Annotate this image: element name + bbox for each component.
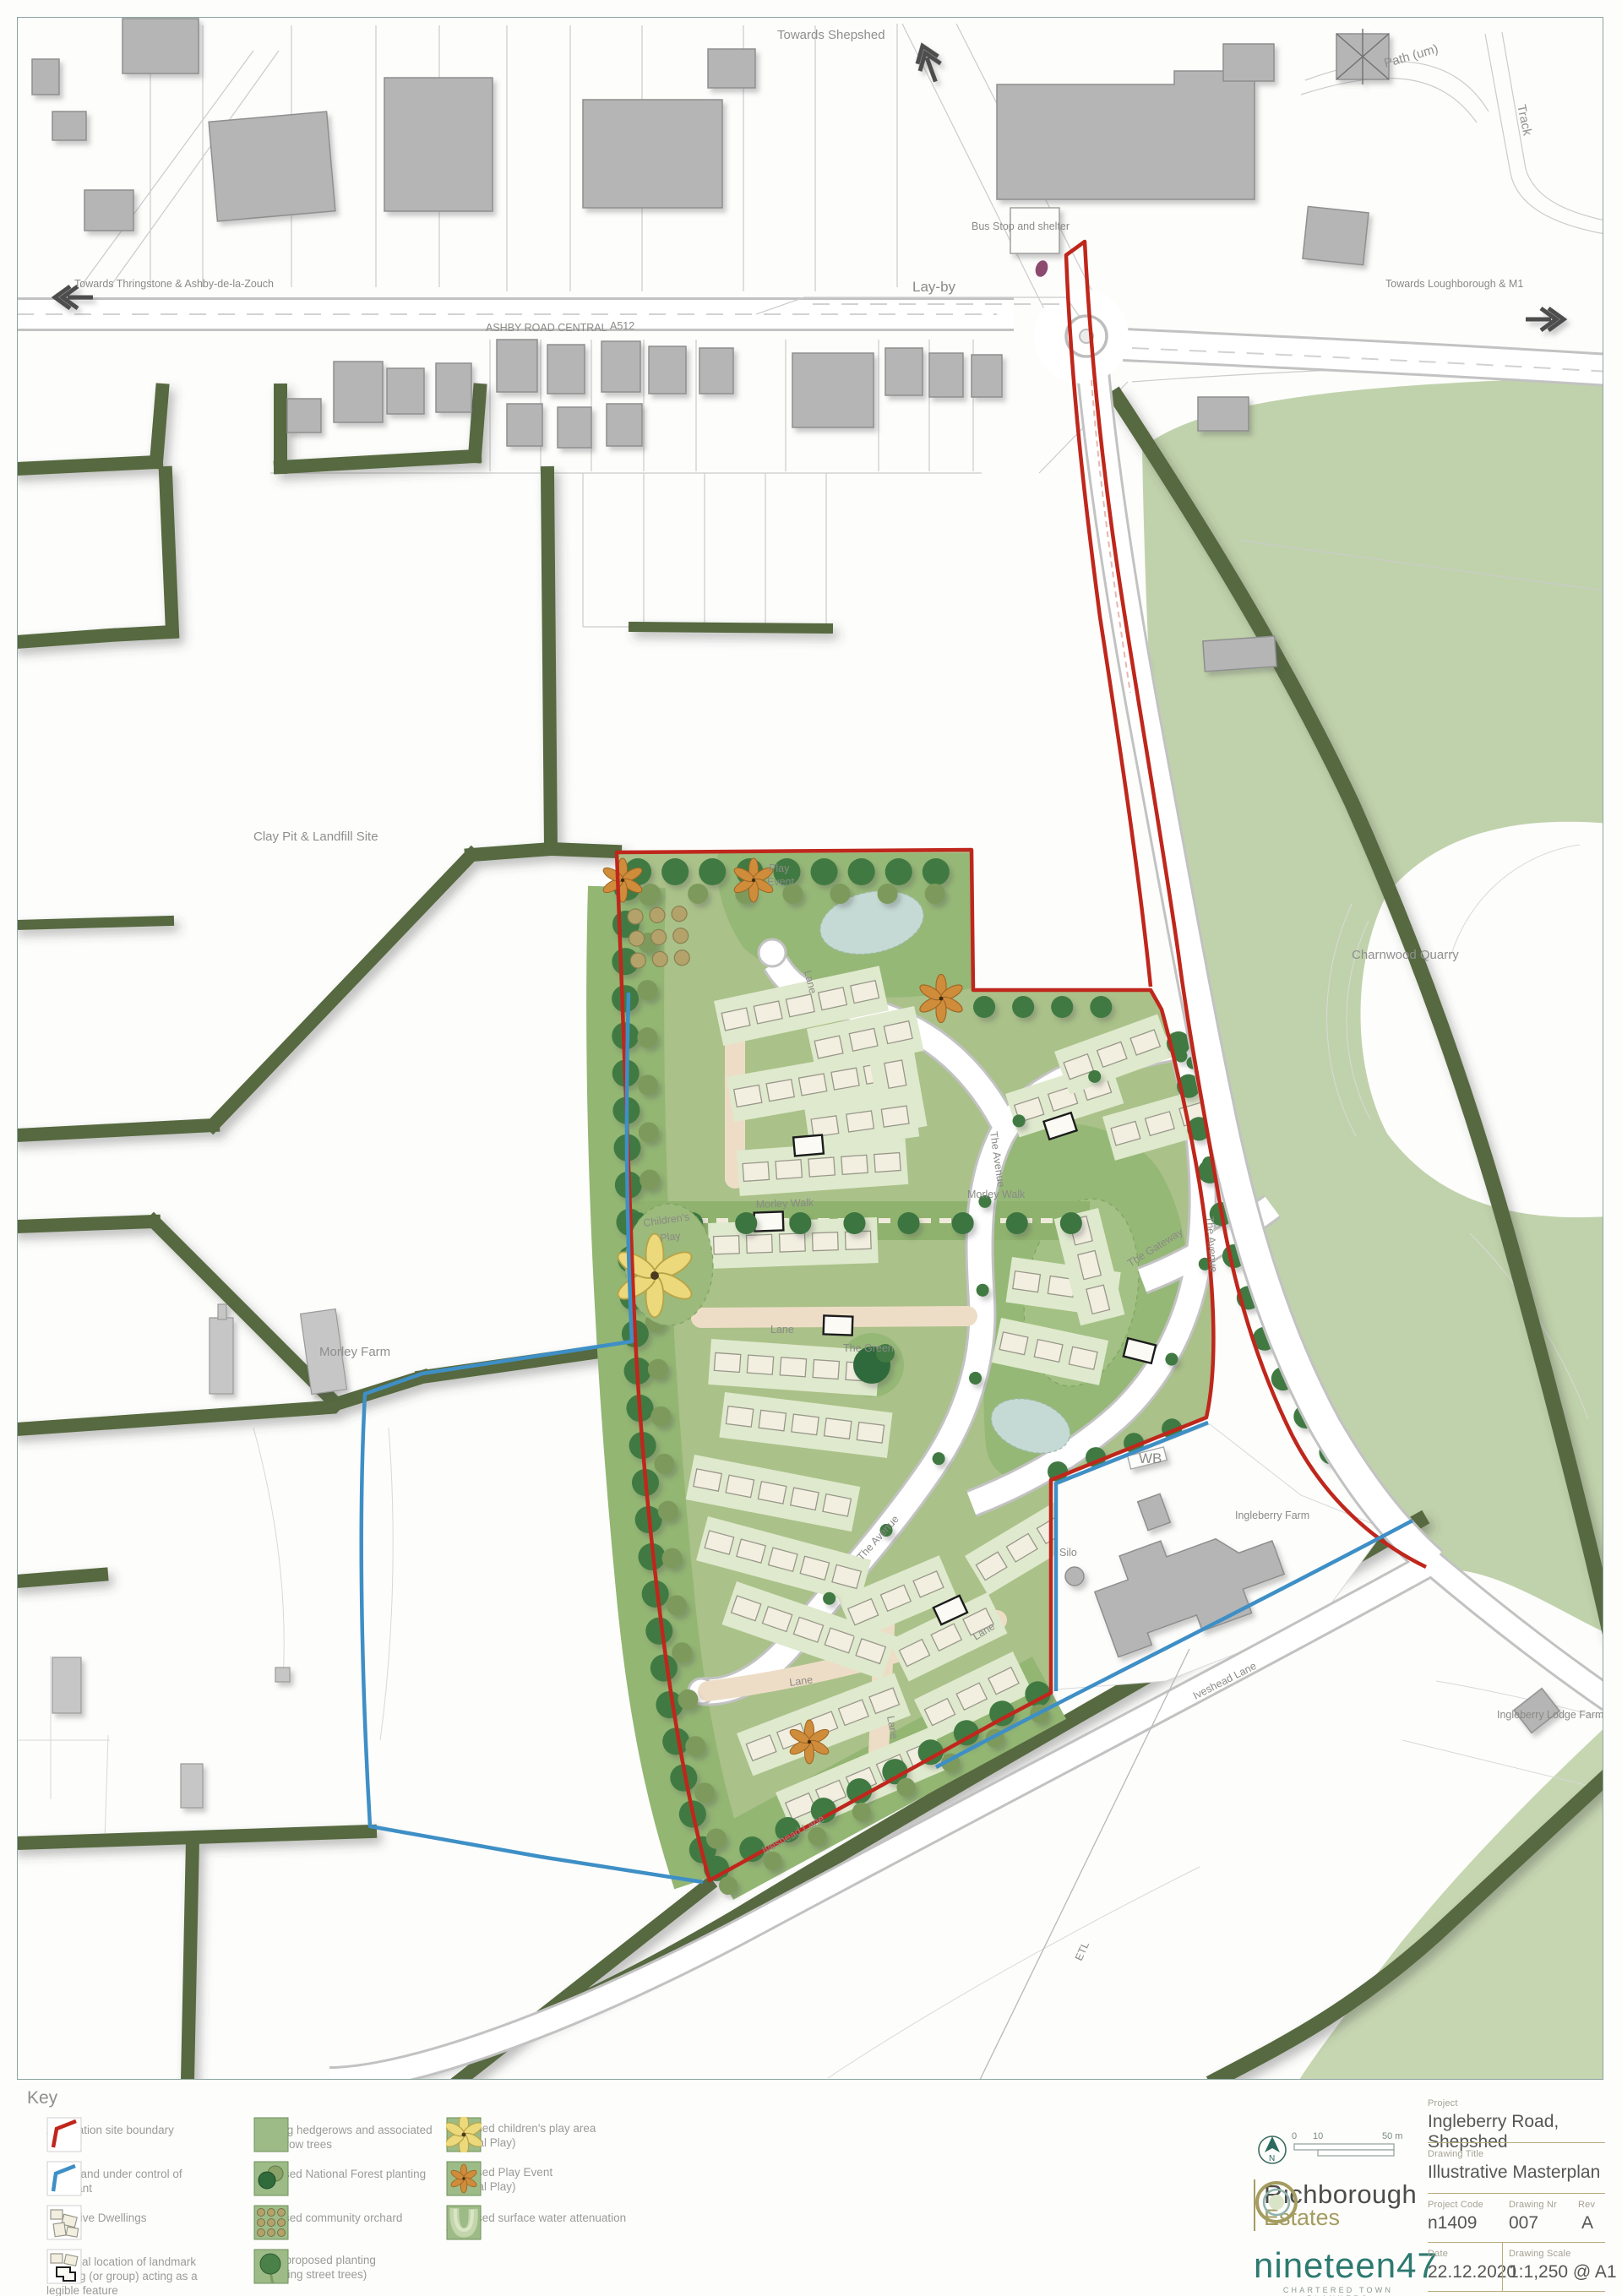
key-swatch-other-planting [253,2249,289,2284]
label-morley-walk-b: Morley Walk [967,1189,1026,1200]
key-swatch-other-land [46,2161,82,2196]
key-item-existing-hedgerows: Existing hedgerows and associated hedger… [253,2117,435,2152]
label-silo: Silo [1059,1547,1077,1559]
scale-50: 50 m [1382,2131,1402,2141]
label-etl: ETL [1073,1940,1091,1963]
scale-label: Drawing Scale [1509,2249,1571,2259]
label-play-event-2: Event [767,876,794,888]
richborough-logo: Richborough Estates [1254,2179,1417,2231]
label-morley-farm: Morley Farm [319,1345,390,1359]
drawing-nr-value: 007 [1509,2213,1538,2233]
label-charnwood-quarry: Charnwood Quarry [1352,948,1459,962]
label-the-green: The Green [843,1342,894,1354]
project-code-label: Project Code [1428,2200,1483,2210]
label-play-event-1: Play [769,862,790,874]
scale-0: 0 [1292,2131,1297,2141]
key-swatch-play-event [446,2161,482,2196]
key-swatch-application-site-boundary [46,2117,82,2152]
label-ingleberry-lodge-farm: Ingleberry Lodge Farm [1497,1709,1603,1721]
masterplan-sheet: Towards Shepshed Path (um) Track Towards… [0,0,1622,2296]
key-swatch-national-forest-planting [253,2161,289,2196]
label-towards-thringstone: Towards Thringstone & Ashby-de-la-Zouch [74,278,274,290]
label-a512: A512 [610,320,634,332]
label-bus-stop: Bus Stop and shelter [972,220,1070,232]
legend: Key Application site boundary Other land… [0,2080,1242,2296]
key-swatch-landmark-building [46,2249,82,2284]
key-item-national-forest-planting: Proposed National Forest planting [253,2161,426,2182]
key-swatch-indicative-dwellings [46,2205,82,2240]
masterplan-map: Towards Shepshed Path (um) Track Towards… [0,0,1622,2296]
key-item-application-site-boundary: Application site boundary [46,2117,174,2138]
label-morley-walk-a: Morley Walk [756,1197,814,1211]
community-orchard [623,902,694,973]
label-clay-pit: Clay Pit & Landfill Site [253,830,378,844]
key-item-indicative-dwellings: Indicative Dwellings [46,2205,147,2226]
key-item-play-event: Proposed Play Event (Natural Play) [446,2161,552,2195]
key-item-community-orchard: Proposed community orchard [253,2205,402,2226]
nineteen47-logo: nineteen47 CHARTERED TOWN PLANNERS & URB… [1254,2245,1423,2296]
label-ashby-road: ASHBY ROAD CENTRAL [486,322,607,334]
label-towards-shepshed: Towards Shepshed [777,28,885,42]
drawing-title-value: Illustrative Masterplan [1428,2163,1600,2183]
label-ingleberry-farm: Ingleberry Farm [1235,1510,1309,1521]
date-value: 22.12.2020 [1428,2262,1516,2282]
label-track: Track [1514,103,1534,137]
rev-label: Rev [1578,2200,1595,2210]
key-item-landmark-building: Potential location of landmark building … [46,2249,228,2296]
scale-bar: N 0 10 50 m [1254,2129,1414,2171]
date-label: Date [1428,2249,1448,2259]
key-item-other-land: Other land under control of applicant [46,2161,228,2196]
brand-nineteen47: nineteen47 [1254,2245,1423,2286]
richborough-logo-icon [1254,2179,1299,2225]
project-label: Project [1428,2098,1458,2108]
project-value: Ingleberry Road, Shepshed [1428,2112,1622,2152]
legend-title: Key [27,2088,57,2108]
scale-10: 10 [1313,2131,1323,2141]
key-item-other-planting: Other proposed planting (Including stree… [253,2249,376,2282]
key-item-surface-water: Proposed surface water attenuation featu… [446,2205,628,2240]
key-swatch-existing-hedgerows [253,2117,289,2152]
scale-value: 1:1,250 @ A1 [1509,2262,1617,2282]
project-code-value: n1409 [1428,2213,1477,2233]
label-towards-loughborough: Towards Loughborough & M1 [1385,278,1523,290]
label-wb: WB [1139,1450,1162,1466]
brand-nineteen47-sub1: CHARTERED TOWN PLANNERS [1254,2286,1423,2296]
north-letter: N [1269,2154,1275,2163]
key-item-childrens-play-area: Proposed children's play area (Natural P… [446,2117,596,2151]
title-block: N 0 10 50 m Richborough Estates nineteen… [1242,2080,1622,2296]
key-swatch-surface-water [446,2205,482,2240]
key-swatch-community-orchard [253,2205,289,2240]
drawing-nr-label: Drawing Nr [1509,2200,1557,2210]
drawing-title-label: Drawing Title [1428,2149,1483,2159]
key-swatch-childrens-play-area [446,2117,482,2152]
rev-value: A [1581,2213,1593,2233]
label-lane-a: Lane [770,1324,794,1336]
label-layby: Lay-by [912,279,956,295]
